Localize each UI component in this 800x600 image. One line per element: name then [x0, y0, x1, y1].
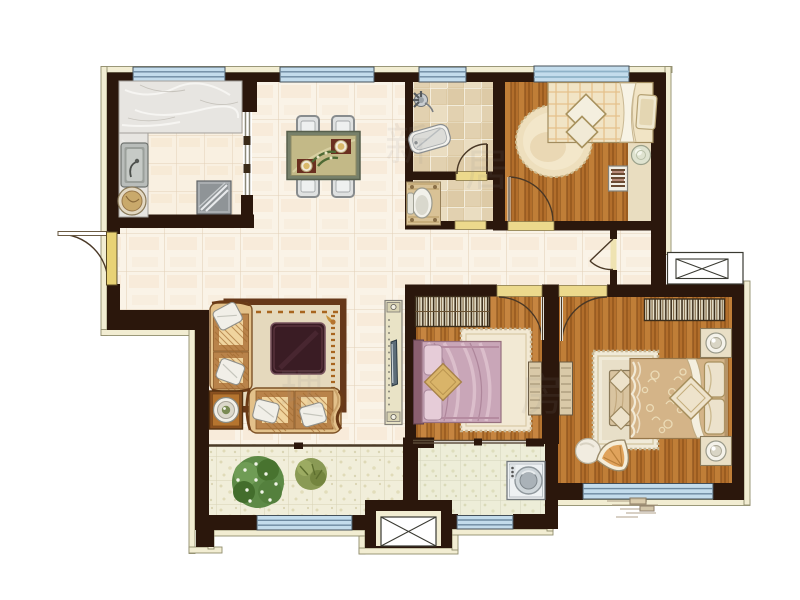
svg-text:新: 新: [385, 121, 429, 170]
svg-text:房: 房: [520, 371, 564, 420]
svg-text:理: 理: [280, 366, 324, 415]
svg-text:居: 居: [465, 146, 509, 195]
